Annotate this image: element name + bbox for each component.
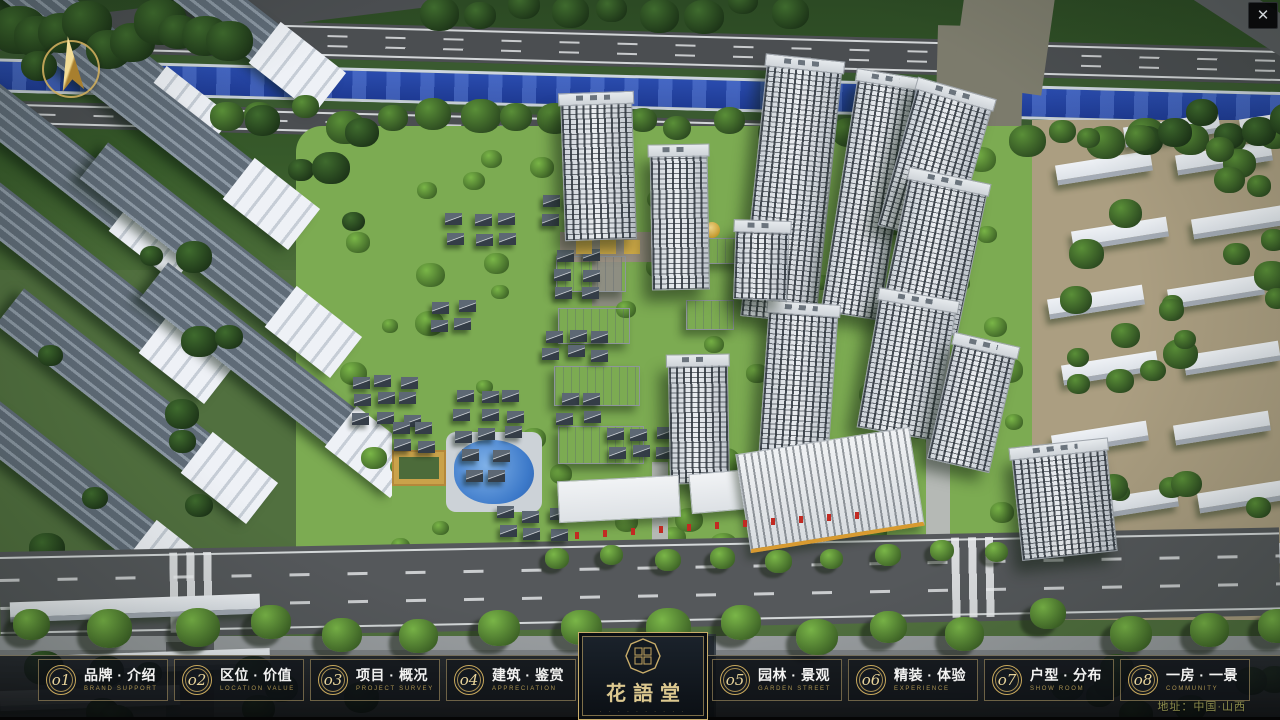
courtyard-house: [551, 529, 568, 541]
courtyard-house: [607, 428, 624, 440]
courtyard-house: [447, 233, 464, 245]
courtyard-house: [493, 450, 510, 462]
tree: [710, 547, 735, 569]
red-banner: [575, 532, 579, 539]
red-banner: [771, 518, 775, 525]
compass-north-indicator[interactable]: [36, 34, 106, 104]
tree: [1247, 175, 1272, 196]
highrise-tower: [650, 150, 710, 291]
tree: [721, 605, 761, 640]
project-address: 地址：中国·山西: [1157, 698, 1246, 714]
courtyard-house: [555, 287, 572, 299]
nav-number-badge: o1: [46, 665, 76, 695]
tree: [772, 0, 809, 29]
red-banner: [715, 522, 719, 529]
red-banner: [855, 512, 859, 519]
nav-item-location-value[interactable]: o2 区位 · 价值 LOCATION VALUE: [174, 659, 304, 701]
tree: [714, 107, 746, 134]
courtyard-house: [523, 528, 540, 540]
tree: [1254, 261, 1280, 291]
tree: [140, 246, 164, 266]
courtyard-house: [475, 214, 492, 226]
tree: [655, 549, 681, 571]
presentation-window: ✕ o1 品牌 · 介绍 BRAND SUPPORT o2 区位 · 价值 LO…: [0, 0, 1280, 720]
nav-item-room-view[interactable]: o8 一房 · 一景 COMMUNITY: [1120, 659, 1250, 701]
tree: [432, 521, 449, 536]
tree: [176, 608, 220, 646]
courtyard-house: [482, 409, 499, 421]
courtyard-house: [568, 345, 585, 357]
close-button[interactable]: ✕: [1248, 2, 1278, 29]
courtyard-house: [583, 270, 600, 282]
highrise-tower: [733, 225, 790, 301]
brand-name: 花語堂: [606, 677, 687, 706]
tree: [663, 116, 691, 140]
courtyard-house: [478, 428, 495, 440]
tree: [704, 336, 724, 353]
courtyard-house: [500, 525, 517, 537]
tree: [1223, 243, 1249, 266]
brand-tagline: · · · · · · · · · ·: [600, 709, 686, 715]
nav-label-zh: 品牌 · 介绍: [84, 668, 158, 682]
nav-number-badge: o2: [182, 665, 212, 695]
courtyard-house: [415, 422, 432, 434]
courtyard-house: [499, 233, 516, 245]
nav-label-en: COMMUNITY: [1166, 686, 1238, 692]
tree: [87, 609, 132, 648]
brand-logo-panel[interactable]: 花語堂 · · · · · · · · · ·: [578, 632, 708, 720]
tree: [1190, 613, 1229, 647]
tree: [640, 0, 679, 33]
courtyard-house: [453, 409, 470, 421]
tree: [491, 285, 508, 300]
nav-number-badge: o6: [856, 665, 886, 695]
courtyard-house: [502, 390, 519, 402]
highrise-tower: [1011, 444, 1118, 561]
tree: [1110, 616, 1152, 652]
courtyard-house: [609, 447, 626, 459]
nav-label-en: SHOW ROOM: [1030, 686, 1102, 692]
courtyard-house: [418, 441, 435, 453]
tree: [1186, 99, 1218, 126]
nav-number-badge: o8: [1128, 665, 1158, 695]
tree: [1111, 323, 1140, 348]
nav-item-architecture[interactable]: o4 建筑 · 鉴赏 APPRECIATION: [446, 659, 576, 701]
tree: [345, 118, 379, 147]
tree: [820, 549, 843, 569]
courtyard-house: [462, 449, 479, 461]
tree: [1109, 199, 1143, 228]
nav-number-badge: o3: [318, 665, 348, 695]
highrise-tower: [668, 359, 730, 484]
courtyard-house: [488, 470, 505, 482]
tree: [1246, 497, 1271, 519]
tree: [1140, 360, 1166, 382]
tree: [251, 605, 290, 639]
tree: [464, 2, 496, 29]
tree: [322, 618, 362, 652]
red-banner: [659, 526, 663, 533]
tree: [1261, 229, 1280, 250]
tree: [461, 99, 501, 133]
courtyard-house: [591, 350, 608, 362]
courtyard-house: [542, 348, 559, 360]
tree: [1077, 128, 1100, 148]
tree: [245, 105, 280, 135]
courtyard-house: [482, 391, 499, 403]
tree: [545, 548, 569, 569]
nav-label-zh: 园林 · 景观: [758, 668, 831, 682]
courtyard-house: [505, 426, 522, 438]
red-banner: [603, 530, 607, 537]
pavilion: [392, 450, 446, 486]
tree: [13, 609, 49, 640]
tree: [288, 159, 314, 181]
tree: [312, 152, 349, 184]
tree: [1009, 125, 1046, 157]
courtyard-house: [353, 377, 370, 389]
courtyard-house: [431, 320, 448, 332]
tree: [176, 241, 213, 272]
courtyard-house: [352, 413, 369, 425]
nav-label-zh: 户型 · 分布: [1030, 668, 1102, 682]
courtyard-house: [454, 318, 471, 330]
nav-number-badge: o4: [454, 665, 484, 695]
tree: [342, 212, 365, 232]
tree: [215, 325, 243, 349]
nav-number-badge: o5: [720, 665, 750, 695]
nav-item-interior-experience[interactable]: o6 精装 · 体验 EXPERIENCE: [848, 659, 978, 701]
courtyard-house: [507, 411, 524, 423]
nav-item-garden-landscape[interactable]: o5 园林 · 景观 GARDEN STREET: [712, 659, 842, 701]
courtyard-house: [445, 213, 462, 225]
tree: [181, 326, 217, 357]
tree: [165, 399, 200, 429]
nav-label-zh: 区位 · 价值: [220, 668, 295, 682]
tree: [346, 232, 370, 253]
tree: [530, 157, 554, 178]
courtyard-house: [570, 330, 587, 342]
tree: [169, 430, 195, 453]
courtyard-house: [591, 331, 608, 343]
courtyard-house: [457, 390, 474, 402]
tree: [684, 0, 724, 34]
tree: [1171, 471, 1202, 498]
tree: [292, 95, 319, 118]
courtyard-house: [583, 393, 600, 405]
tree: [1030, 598, 1066, 629]
tree: [361, 447, 387, 469]
nav-label-en: GARDEN STREET: [758, 686, 831, 692]
tree: [1159, 299, 1184, 321]
courtyard-house: [466, 470, 483, 482]
tree: [1214, 167, 1245, 194]
tree: [1158, 118, 1192, 147]
courtyard-house: [399, 392, 416, 404]
red-banner: [799, 516, 803, 523]
tree: [945, 617, 984, 651]
courtyard-house: [394, 439, 411, 451]
tree: [629, 108, 657, 132]
nav-label-zh: 一房 · 一景: [1166, 668, 1238, 682]
tree: [1206, 137, 1235, 162]
nav-item-project-survey[interactable]: o3 项目 · 概况 PROJECT SURVEY: [310, 659, 440, 701]
tree: [1125, 125, 1156, 151]
tree: [875, 544, 901, 566]
courtyard-house: [633, 445, 650, 457]
nav-label-en: APPRECIATION: [492, 686, 564, 692]
tree: [210, 102, 244, 131]
courtyard-house: [393, 422, 410, 434]
courtyard-house: [374, 375, 391, 387]
midrise-building: [686, 300, 734, 330]
courtyard-house: [630, 429, 647, 441]
red-banner: [687, 524, 691, 531]
nav-label-en: PROJECT SURVEY: [356, 686, 434, 692]
tree: [1069, 239, 1104, 269]
tree: [417, 182, 437, 199]
nav-label-zh: 精装 · 体验: [894, 668, 966, 682]
shuttle-buses: [576, 240, 646, 254]
courtyard-house: [562, 393, 579, 405]
red-banner: [743, 520, 747, 527]
tree: [484, 253, 509, 274]
courtyard-house: [542, 214, 559, 226]
brand-seal-icon: [625, 638, 661, 674]
courtyard-house: [476, 234, 493, 246]
tree: [1067, 348, 1089, 367]
tree: [990, 502, 1014, 523]
tree: [420, 0, 459, 31]
courtyard-house: [432, 302, 449, 314]
courtyard-house: [582, 287, 599, 299]
courtyard-house: [543, 195, 560, 207]
tree: [765, 550, 792, 573]
nav-item-brand-intro[interactable]: o1 品牌 · 介绍 BRAND SUPPORT: [38, 659, 168, 701]
tree: [185, 494, 213, 518]
tree: [552, 0, 589, 28]
courtyard-house: [455, 431, 472, 443]
tree: [985, 542, 1008, 562]
highrise-tower: [560, 97, 637, 241]
tree: [796, 619, 838, 655]
courtyard-house: [557, 250, 574, 262]
nav-label-en: BRAND SUPPORT: [84, 686, 158, 692]
tree: [399, 619, 438, 653]
tree: [415, 98, 451, 129]
nav-number-badge: o7: [992, 665, 1022, 695]
nav-item-floorplan-distribution[interactable]: o7 户型 · 分布 SHOW ROOM: [984, 659, 1114, 701]
tree: [206, 21, 253, 61]
nav-label-en: EXPERIENCE: [894, 686, 966, 692]
courtyard-house: [378, 392, 395, 404]
tree: [382, 319, 398, 333]
nav-label-en: LOCATION VALUE: [220, 686, 295, 692]
tree: [1067, 374, 1090, 394]
courtyard-house: [497, 506, 514, 518]
courtyard-house: [498, 213, 515, 225]
red-banner: [631, 528, 635, 535]
street-retail-building: [557, 475, 681, 523]
courtyard-house: [584, 411, 601, 423]
courtyard-house: [401, 377, 418, 389]
courtyard-house: [522, 511, 539, 523]
tree: [463, 172, 485, 191]
tree: [500, 103, 532, 131]
tree: [1060, 286, 1092, 314]
top-right-road: [952, 0, 1058, 96]
tree: [378, 105, 408, 131]
courtyard-house: [354, 394, 371, 406]
courtyard-house: [546, 331, 563, 343]
courtyard-house: [377, 412, 394, 424]
courtyard-house: [556, 413, 573, 425]
nav-label-zh: 项目 · 概况: [356, 668, 434, 682]
tree: [1049, 120, 1076, 143]
tree: [870, 611, 908, 643]
masterplan-3d-viewport[interactable]: [0, 0, 1280, 720]
nav-label-zh: 建筑 · 鉴赏: [492, 668, 564, 682]
tree: [38, 345, 63, 367]
tree: [1106, 369, 1134, 393]
tree: [930, 540, 954, 561]
courtyard-house: [459, 300, 476, 312]
red-banner: [827, 514, 831, 521]
tree: [478, 610, 520, 646]
courtyard-house: [554, 269, 571, 281]
